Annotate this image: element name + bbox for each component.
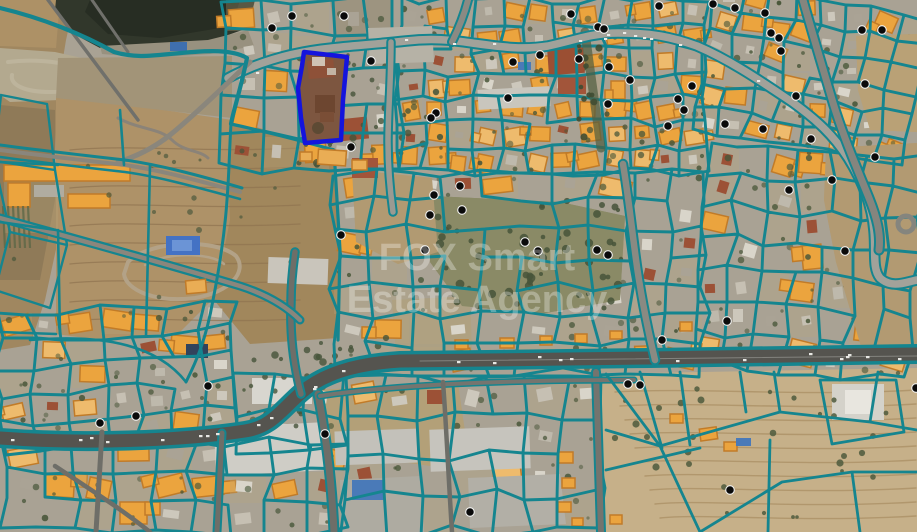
svg-text:Estate Agency: Estate Agency bbox=[347, 279, 607, 321]
svg-text:FOX Smart: FOX Smart bbox=[379, 237, 576, 279]
